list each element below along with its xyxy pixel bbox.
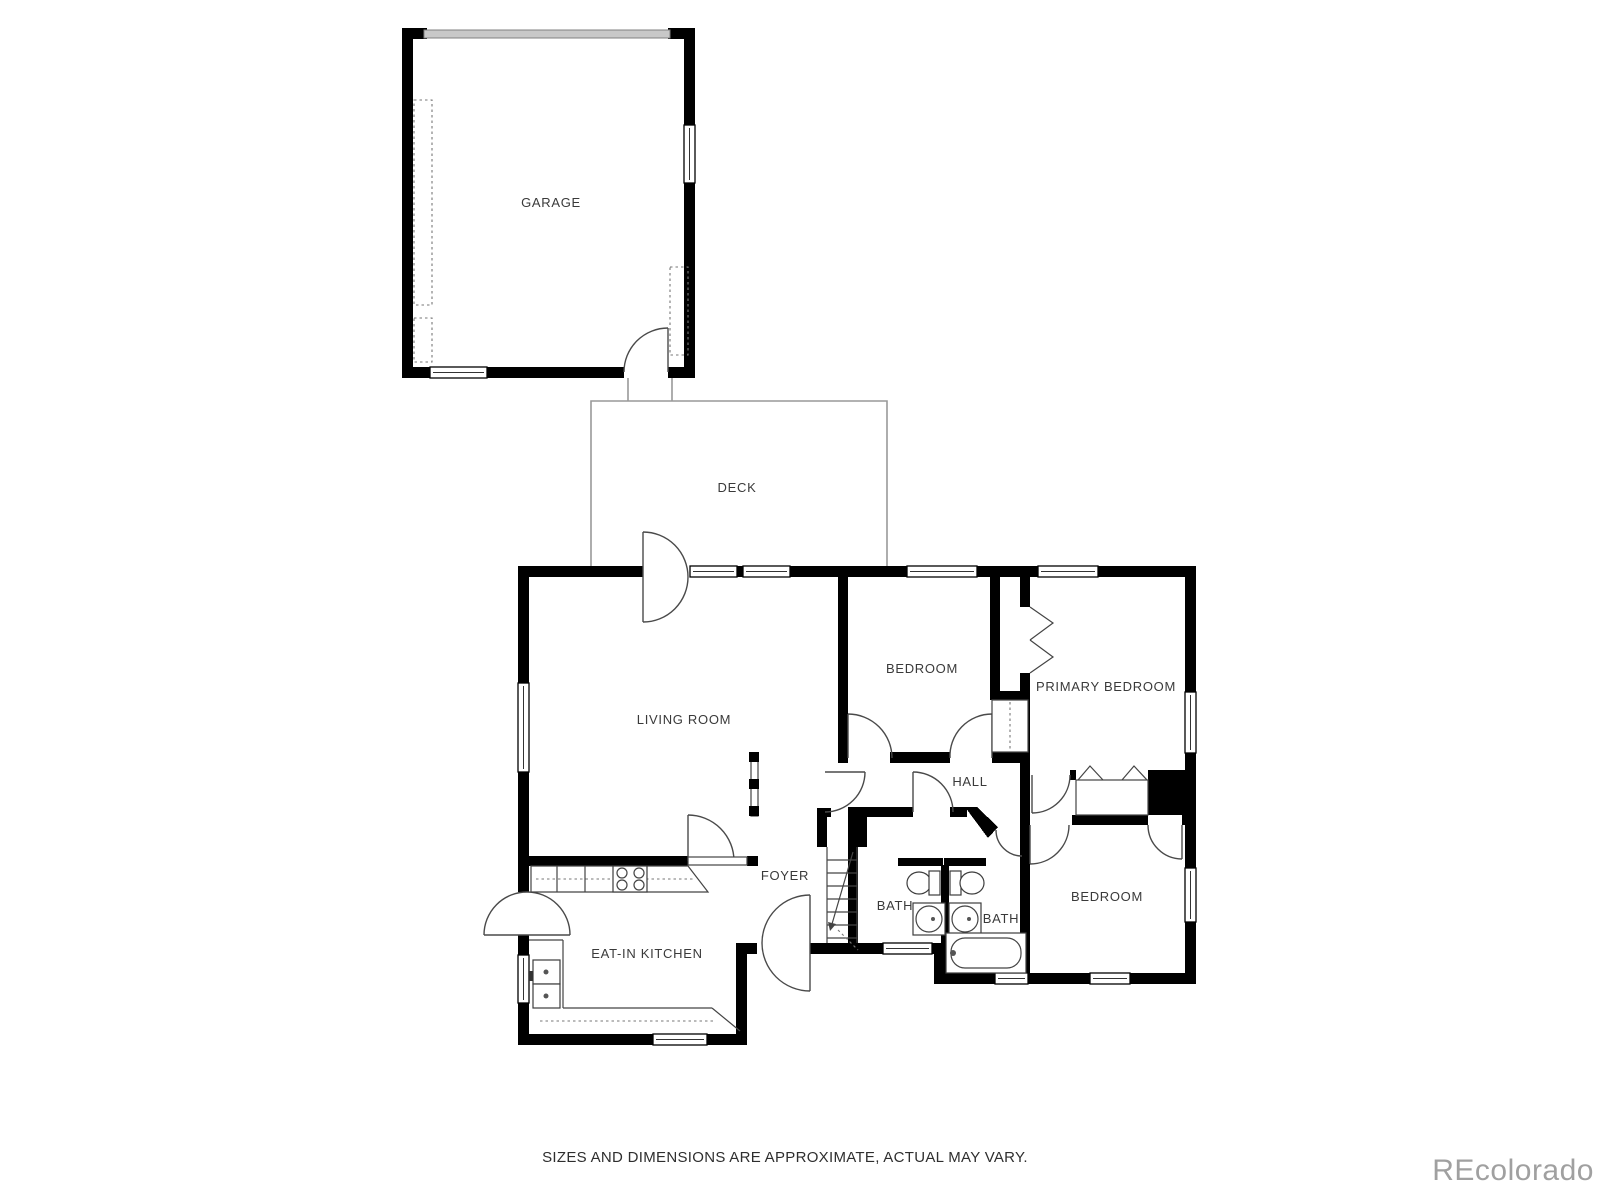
primary-bottom-closet [1076, 766, 1148, 815]
primary-side-closet-bifold [1030, 607, 1053, 673]
room-label-bedroom-upper: BEDROOM [886, 661, 958, 676]
stair-railing [749, 752, 759, 816]
bath-right-window [995, 973, 1028, 984]
room-label-hall: HALL [952, 774, 987, 789]
bath-left-door [913, 772, 953, 812]
stove [613, 866, 647, 892]
primary-bedroom-door [1032, 775, 1070, 813]
kitchen-living-door [688, 815, 734, 861]
primary-side-window [1185, 692, 1196, 753]
room-label-bedroom-lower: BEDROOM [1071, 889, 1143, 904]
bedroom-upper-door-right [950, 714, 992, 758]
kitchen-bottom-window [653, 1034, 707, 1045]
sink-right [949, 903, 981, 935]
room-label-foyer: FOYER [761, 868, 809, 883]
room-label-deck: DECK [718, 480, 757, 495]
garage-entry-door [624, 328, 668, 372]
primary-top-window [1038, 566, 1098, 577]
bathtub [946, 933, 1026, 973]
toilet-right [950, 871, 984, 895]
bedroom-upper-window [907, 566, 977, 577]
room-label-living-room: LIVING ROOM [637, 712, 731, 727]
room-label-bath-left: BATH [877, 898, 914, 913]
watermark-recolorado: REcolorado [1432, 1154, 1594, 1187]
bedroom-lower-door-left [1030, 825, 1069, 864]
deck-garage-landing [628, 378, 672, 401]
front-door [762, 895, 810, 991]
room-label-primary-bedroom: PRIMARY BEDROOM [1036, 679, 1176, 694]
kitchen-exterior-door [484, 892, 570, 935]
garage-window-right [684, 125, 695, 183]
disclaimer-text: SIZES AND DIMENSIONS ARE APPROXIMATE, AC… [542, 1149, 1028, 1166]
room-label-eat-in-kitchen: EAT-IN KITCHEN [591, 946, 702, 961]
sink-left [913, 903, 945, 935]
hall-small-closet [992, 700, 1028, 752]
deck: DECK [591, 378, 887, 566]
bath-left-window [883, 943, 932, 954]
room-label-bath-right: BATH [983, 911, 1020, 926]
closets [992, 607, 1148, 815]
deck-window-right [743, 566, 790, 577]
garage-overhead-door [424, 30, 670, 38]
living-room-window [518, 683, 529, 772]
floor-plan-drawing: GARAGE DECK [0, 0, 1600, 1200]
garage-storage-dashed [414, 100, 688, 362]
kitchen-pass-through [688, 857, 747, 865]
garage-window-bottom [430, 367, 487, 378]
bedroom-lower-bottom-window [1090, 973, 1130, 984]
toilet-left [907, 871, 940, 895]
kitchen-side-window [518, 955, 529, 1003]
garage: GARAGE [402, 28, 695, 378]
hall-closet-door [825, 772, 865, 812]
room-label-garage: GARAGE [521, 195, 581, 210]
floor-plan-page: GARAGE DECK [0, 0, 1600, 1200]
bedroom-lower-door-right [1148, 825, 1182, 859]
deck-window-left [690, 566, 737, 577]
bedroom-upper-door-left [848, 714, 892, 758]
kitchen-sink [529, 960, 560, 1008]
deck-entry-door [643, 532, 688, 622]
bath-right-door [996, 830, 1022, 856]
bedroom-lower-side-window [1185, 868, 1196, 922]
